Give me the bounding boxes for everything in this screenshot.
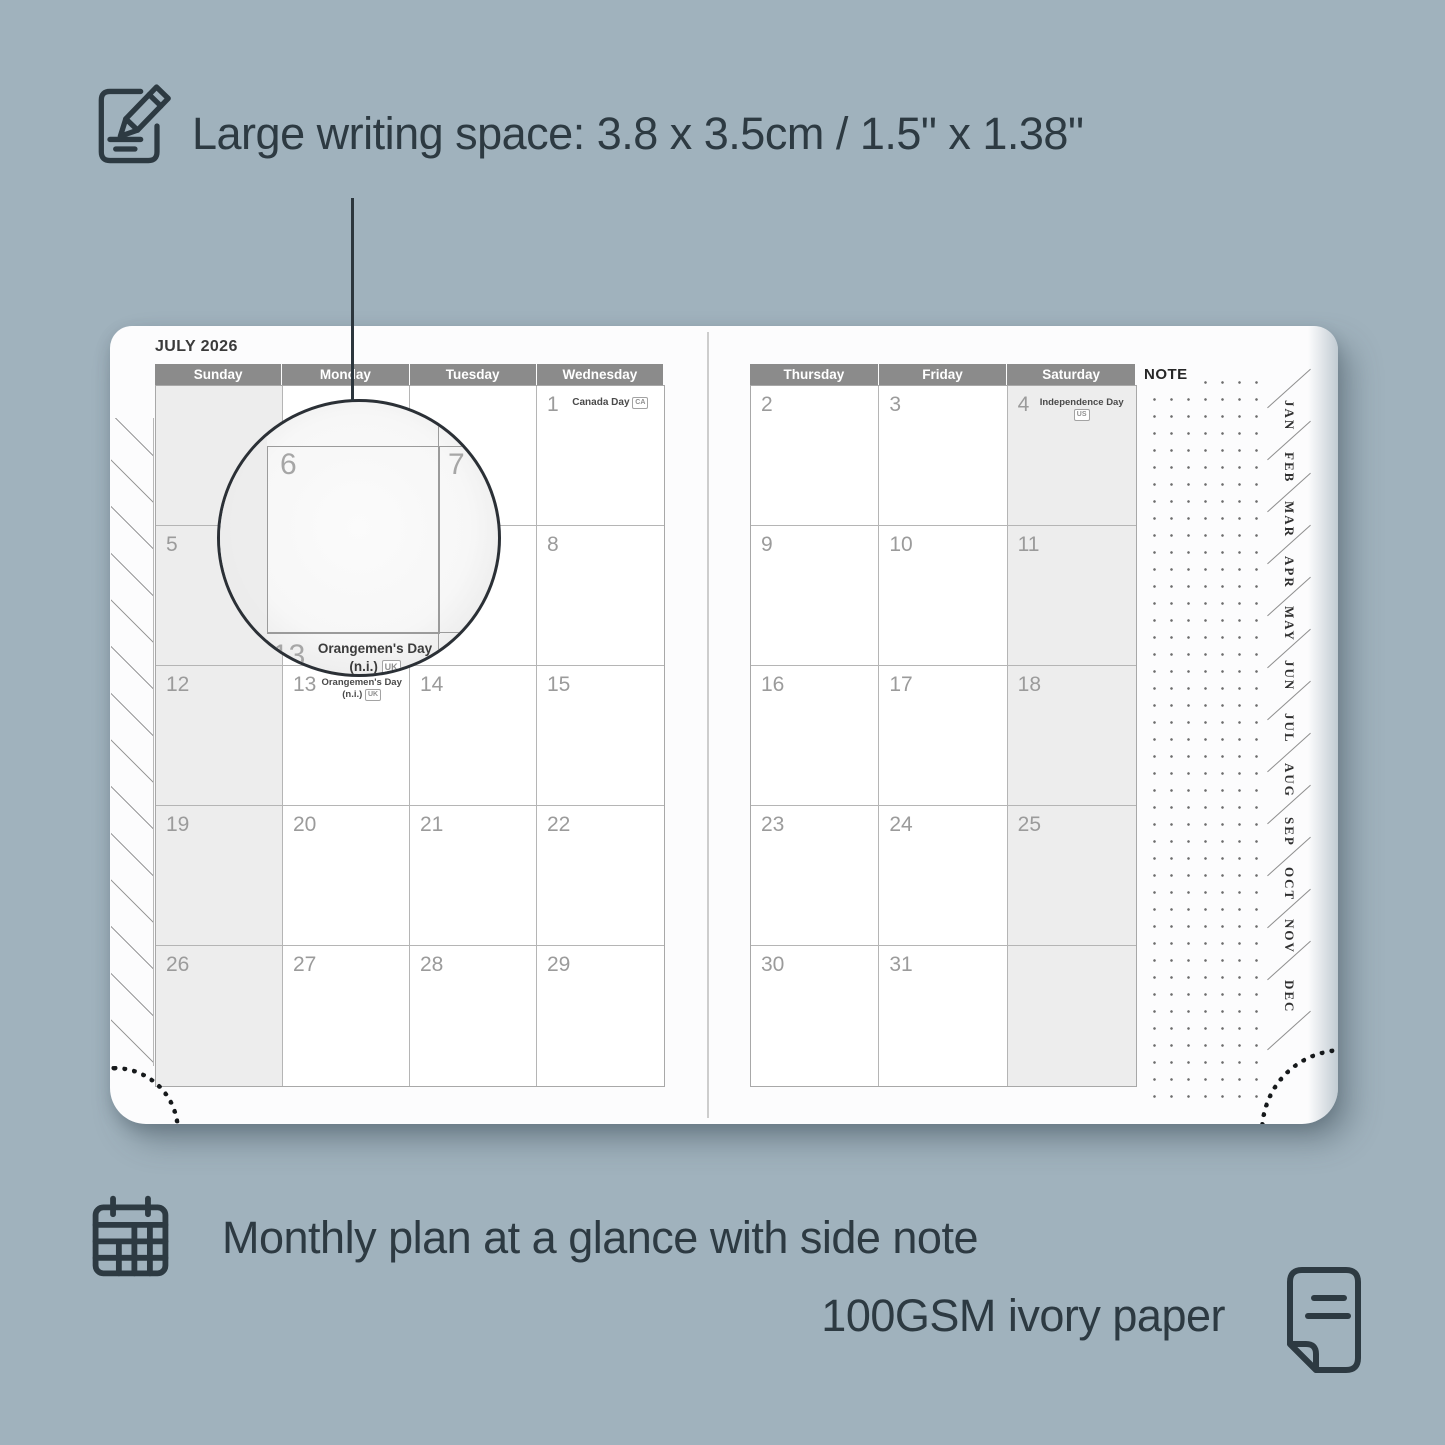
month-tab-nov: NOV xyxy=(1266,910,1312,962)
day-cell: 24 xyxy=(879,806,1007,946)
day-header-friday: Friday xyxy=(879,364,1008,385)
day-cell: 9 xyxy=(751,526,879,666)
day-cell: 23 xyxy=(751,806,879,946)
day-cell: 25 xyxy=(1008,806,1136,946)
day-cell-orangemens-day: 13 Orangemen's Day (n.i.) UK xyxy=(283,666,410,806)
day-cell: 3 xyxy=(879,386,1007,526)
country-badge: US xyxy=(1074,409,1090,421)
day-cell: 15 xyxy=(537,666,664,806)
day-cell: 21 xyxy=(410,806,537,946)
day-cell: 18 xyxy=(1008,666,1136,806)
day-header-tuesday: Tuesday xyxy=(410,364,537,385)
callout-line xyxy=(351,198,354,401)
page-spine-line xyxy=(707,332,709,1118)
feature-text-paper: 100GSM ivory paper xyxy=(821,1290,1225,1342)
day-cell: 12 xyxy=(156,666,283,806)
day-cell: 14 xyxy=(410,666,537,806)
feature-text-monthly-plan: Monthly plan at a glance with side note xyxy=(222,1212,978,1264)
note-label: NOTE xyxy=(1144,366,1193,385)
note-dot-grid xyxy=(1144,368,1268,1104)
month-tab-jul: JUL xyxy=(1266,702,1312,754)
country-badge: UK xyxy=(365,689,381,701)
day-header-monday: Monday xyxy=(282,364,409,385)
holiday-label: Canada Day CA xyxy=(559,386,664,409)
left-day-header-row: Sunday Monday Tuesday Wednesday xyxy=(155,364,663,385)
feature-text-writing-space: Large writing space: 3.8 x 3.5cm / 1.5" … xyxy=(192,108,1083,160)
day-cell: 19 xyxy=(156,806,283,946)
day-cell: 17 xyxy=(879,666,1007,806)
month-tab-feb: FEB xyxy=(1266,442,1312,494)
calendar-grid-icon xyxy=(82,1188,179,1285)
day-cell-canada-day: 1 Canada Day CA xyxy=(537,386,664,526)
day-cell: 22 xyxy=(537,806,664,946)
country-badge: CA xyxy=(632,397,648,409)
day-cell: 27 xyxy=(283,946,410,1086)
paper-sheet-icon xyxy=(1272,1262,1372,1378)
day-cell: 31 xyxy=(879,946,1007,1086)
product-image: Large writing space: 3.8 x 3.5cm / 1.5" … xyxy=(0,0,1445,1445)
holiday-label: Independence Day US xyxy=(1029,386,1136,422)
magnified-day-6: 6 xyxy=(280,448,297,482)
right-month-grid: 2 3 4 Independence Day US 9 10 11 16 17 … xyxy=(750,385,1137,1087)
day-header-sunday: Sunday xyxy=(155,364,282,385)
magnifier-circle: 6 7 13 Orangemen's Day (n.i.) UK xyxy=(217,399,501,677)
month-tab-dec: DEC xyxy=(1266,962,1312,1032)
corner-stitch-arc-right xyxy=(1260,1048,1338,1124)
day-cell: 29 xyxy=(537,946,664,1086)
day-cell: 28 xyxy=(410,946,537,1086)
country-badge: UK xyxy=(382,660,401,674)
page-edge-shadow xyxy=(1308,326,1338,1124)
day-header-wednesday: Wednesday xyxy=(537,364,663,385)
day-header-saturday: Saturday xyxy=(1007,364,1135,385)
day-cell: 11 xyxy=(1008,526,1136,666)
month-tab-sep: SEP xyxy=(1266,806,1312,858)
day-cell: 26 xyxy=(156,946,283,1086)
day-cell-independence-day: 4 Independence Day US xyxy=(1008,386,1136,526)
month-tab-strip: JAN FEB MAR APR MAY JUN JUL AUG SEP OCT … xyxy=(1266,390,1312,1050)
month-tab-aug: AUG xyxy=(1266,754,1312,806)
day-cell: 20 xyxy=(283,806,410,946)
day-cell: 30 xyxy=(751,946,879,1086)
day-cell: 16 xyxy=(751,666,879,806)
month-tab-jun: JUN xyxy=(1266,650,1312,702)
magnified-day-7: 7 xyxy=(448,448,465,482)
day-cell xyxy=(1008,946,1136,1086)
month-tab-oct: OCT xyxy=(1266,858,1312,910)
day-header-thursday: Thursday xyxy=(750,364,879,385)
magnified-holiday-label: Orangemen's Day (n.i.) UK xyxy=(290,640,460,676)
magnified-sunday-column xyxy=(220,402,267,674)
month-title: JULY 2026 xyxy=(155,338,238,356)
pencil-writing-icon xyxy=(85,78,181,174)
month-tab-jan: JAN xyxy=(1266,390,1312,442)
day-cell: 8 xyxy=(537,526,664,666)
month-tab-may: MAY xyxy=(1266,598,1312,650)
page-edge-hatching xyxy=(111,418,154,1066)
day-cell: 10 xyxy=(879,526,1007,666)
day-cell: 2 xyxy=(751,386,879,526)
right-day-header-row: Thursday Friday Saturday xyxy=(750,364,1135,385)
month-tab-apr: APR xyxy=(1266,546,1312,598)
month-tab-mar: MAR xyxy=(1266,494,1312,546)
